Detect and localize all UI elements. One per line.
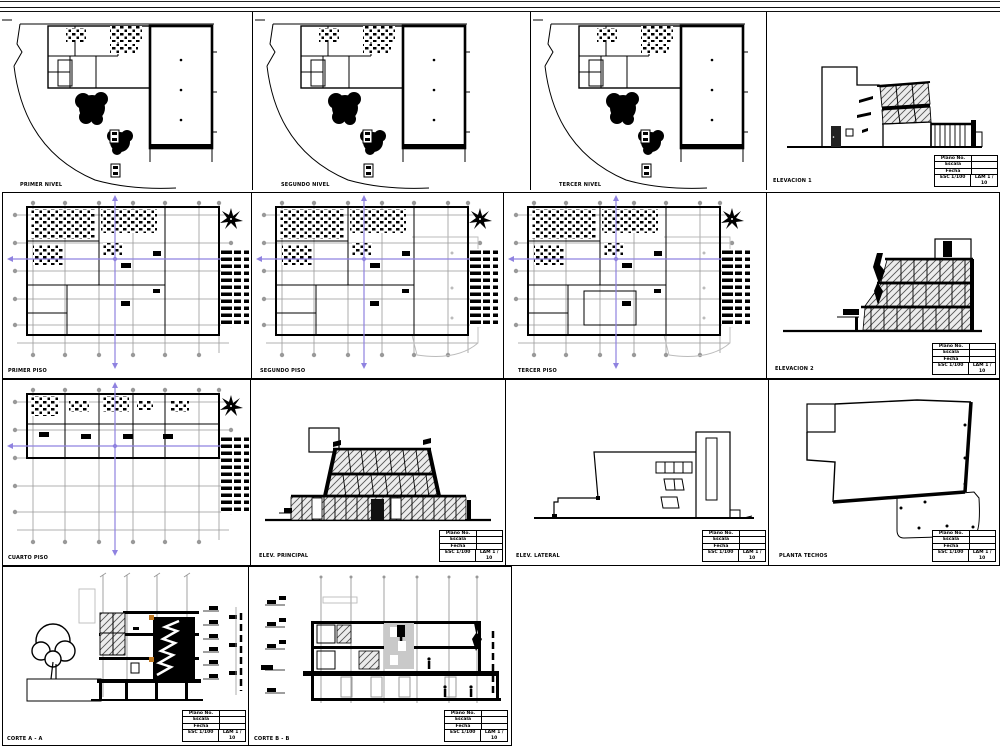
title-block-field: Escala (440, 537, 477, 543)
level-markers (261, 596, 286, 693)
auditorium-seating (584, 291, 636, 325)
panel-label: SEGUNDO PISO (260, 368, 305, 374)
title-block-field: Plano No. (933, 531, 970, 537)
panel-label: ELEV. LATERAL (516, 553, 560, 559)
title-block: Plano No. Escala Fecha ESC 1/100 LAM 1 /… (702, 530, 766, 563)
title-block-sheet-number: LAM 1 / 10 (219, 730, 245, 741)
panel-label: ELEVACION 1 (773, 178, 812, 184)
title-block-scale: ESC 1/100 (703, 550, 739, 561)
title-block-sheet-number: LAM 1 / 10 (739, 550, 765, 561)
title-block-field: Escala (183, 717, 220, 723)
title-block-scale: ESC 1/100 (933, 363, 969, 374)
title-block-field: Plano No. (445, 711, 482, 717)
north-arrow-icon (220, 395, 243, 416)
keynote-legend (470, 249, 498, 327)
panel-label: CORTE B - B (254, 736, 290, 742)
title-block-field: Escala (703, 537, 740, 543)
north-arrow-icon (721, 208, 744, 229)
title-block: Plano No. Escala Fecha ESC 1/100 LAM 1 /… (182, 710, 246, 743)
keynote-legend (221, 436, 249, 514)
title-block-field: Fecha (445, 724, 482, 730)
title-block: Plano No. Escala Fecha ESC 1/100 LAM 1 /… (439, 530, 503, 563)
title-block-field: Fecha (935, 169, 972, 175)
panel-label: TERCER PISO (518, 368, 557, 374)
ground-hatch (27, 679, 101, 701)
site-plan-drawing (531, 12, 767, 190)
title-block-sheet-number: LAM 1 / 10 (481, 730, 507, 741)
title-block-sheet-number: LAM 1 / 10 (969, 550, 995, 561)
panel-floor-plan-3: TERCER PISO (503, 192, 767, 379)
title-block-field: Fecha (933, 544, 970, 550)
cad-sheet-board: PRIMER NIVEL (0, 0, 1000, 751)
panel-site-plan-2: SEGUNDO NIVEL (252, 12, 531, 190)
title-block-field: Fecha (440, 544, 477, 550)
panel-label: PLANTA TECHOS (779, 553, 828, 559)
floor-plan-drawing (3, 193, 251, 376)
panel-elevation-2: ELEVACION 2 Plano No. Escala Fecha ESC 1… (766, 192, 1000, 379)
keynote-legend (722, 249, 750, 327)
panel-label: ELEV. PRINCIPAL (259, 553, 308, 559)
tree-symbol (75, 92, 108, 125)
title-block-field: Escala (933, 350, 970, 356)
level-markers (203, 606, 237, 679)
title-block-field: Plano No. (935, 156, 972, 162)
site-plan-drawing (253, 12, 503, 190)
title-block-field: Plano No. (933, 344, 970, 350)
panel-front-elevation: ELEV. PRINCIPAL Plano No. Escala Fecha E… (250, 379, 507, 566)
roof-vent-dots (433, 59, 436, 122)
panel-label: TERCER NIVEL (559, 182, 601, 188)
title-block-field: Fecha (703, 544, 740, 550)
title-block-field: Fecha (183, 724, 220, 730)
roof-drain-dots (900, 424, 975, 530)
panel-label: PRIMER PISO (8, 368, 47, 374)
floor-plan-drawing (504, 193, 752, 376)
title-block-field: Plano No. (183, 711, 220, 717)
title-block-field: Escala (933, 537, 970, 543)
panel-floor-plan-1: PRIMER PISO (2, 192, 252, 379)
north-arrow-icon (469, 208, 492, 229)
panel-label: ELEVACION 2 (775, 366, 814, 372)
door-symbol (831, 126, 841, 147)
stair-mass (153, 617, 195, 679)
title-block-sheet-number: LAM 1 / 10 (969, 363, 995, 374)
panel-elevation-1: ELEVACION 1 Plano No. Escala Fecha ESC 1… (766, 12, 1000, 190)
panel-label: SEGUNDO NIVEL (281, 182, 330, 188)
title-block: Plano No. Escala Fecha ESC 1/100 LAM 1 /… (932, 343, 996, 376)
roof-vent-dots (711, 59, 714, 122)
north-arrow-icon (220, 208, 243, 229)
title-block-scale: ESC 1/100 (183, 730, 219, 741)
floor-plan-drawing (252, 193, 500, 376)
fixture-marker (149, 615, 154, 620)
building-walls (27, 394, 219, 458)
title-block-field: Plano No. (440, 531, 477, 537)
title-block-scale: ESC 1/100 (935, 175, 971, 186)
title-block-scale: ESC 1/100 (933, 550, 969, 561)
tree-symbol (606, 92, 639, 125)
title-block: Plano No. Escala Fecha ESC 1/100 LAM 1 /… (444, 710, 508, 743)
panel-label: PRIMER NIVEL (20, 182, 62, 188)
site-plan-drawing (0, 12, 250, 190)
fixture-marker (149, 657, 154, 662)
title-block-field: Plano No. (703, 531, 740, 537)
door-symbol (371, 499, 384, 520)
panel-roof-plan: PLANTA TECHOS Plano No. Escala Fecha ESC… (768, 379, 1000, 566)
title-block: Plano No. Escala Fecha ESC 1/100 LAM 1 /… (932, 530, 996, 563)
panel-section-a: CORTE A - A Plano No. Escala Fecha ESC 1… (2, 566, 250, 746)
title-block-scale: ESC 1/100 (440, 550, 476, 561)
title-block: Plano No. Escala Fecha ESC 1/100 LAM 1 /… (934, 155, 998, 188)
panel-site-plan-1: PRIMER NIVEL (0, 12, 252, 190)
title-block-sheet-number: LAM 1 / 10 (476, 550, 502, 561)
panel-site-plan-3: TERCER NIVEL (530, 12, 767, 190)
tree-symbol (32, 624, 75, 679)
title-block-field: Fecha (933, 357, 970, 363)
title-block-sheet-number: LAM 1 / 10 (971, 175, 997, 186)
title-block-field: Escala (445, 717, 482, 723)
panel-section-b: CORTE B - B Plano No. Escala Fecha ESC 1… (248, 566, 512, 746)
title-block-field: Escala (935, 162, 972, 168)
tree-symbol (328, 92, 361, 125)
panel-label: CORTE A - A (7, 736, 43, 742)
panel-floor-plan-4: CUARTO PISO (2, 379, 252, 566)
keynote-legend (221, 249, 249, 327)
title-block-scale: ESC 1/100 (445, 730, 481, 741)
panel-label: CUARTO PISO (8, 555, 48, 561)
floor-plan-drawing (3, 380, 251, 563)
top-hairline (0, 1, 1000, 2)
panel-side-elevation: ELEV. LATERAL Plano No. Escala Fecha ESC… (505, 379, 770, 566)
roof-vent-dots (180, 59, 183, 122)
panel-floor-plan-2: SEGUNDO PISO (251, 192, 505, 379)
